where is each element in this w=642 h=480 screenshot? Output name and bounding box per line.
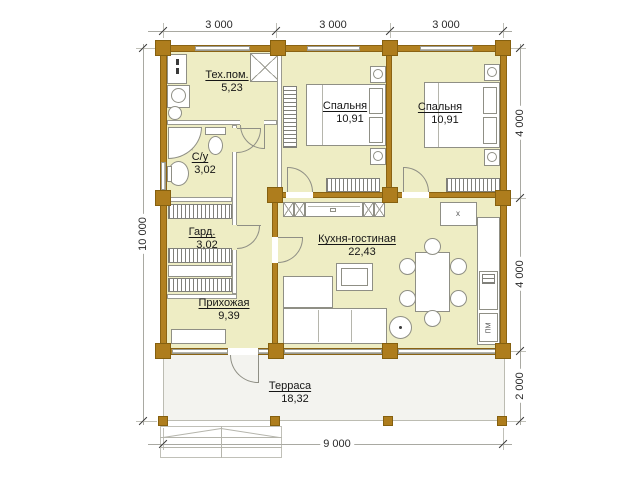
sofa-chaise: [283, 276, 333, 308]
chair-top: [424, 238, 441, 255]
label-hallway: Прихожая 9,39: [199, 297, 250, 322]
toilet-tank: [205, 127, 226, 135]
floor-lamp-dot: [399, 326, 402, 329]
coffee-table-inner: [341, 268, 368, 286]
post-inner-bedroom: [382, 187, 398, 203]
sofa-main: [283, 308, 387, 344]
label-wardrobe: Гард. 3,02: [186, 226, 217, 251]
panel-switch-1: [176, 59, 179, 65]
partition-bath-wardrobe: [167, 197, 232, 202]
bedroom1-closet: [283, 86, 297, 148]
chair-left-1: [399, 258, 416, 275]
post-bottom-3: [382, 343, 398, 359]
bedroom1-lamp-2: [373, 151, 383, 161]
window-tech: [195, 46, 250, 51]
kitchen-cabinet-2: [294, 202, 305, 217]
label-bedroom2: Спальня 10,91: [418, 101, 462, 126]
window-bath: [161, 162, 166, 190]
post-terrace-3: [383, 416, 393, 426]
room-name-hallway: Прихожая: [199, 297, 250, 310]
chair-left-2: [399, 290, 416, 307]
room-name-bathroom: С/у: [184, 151, 215, 164]
opening-bedroom1: [286, 192, 313, 198]
bedroom2-pillow-2: [483, 117, 497, 144]
chair-right-2: [450, 290, 467, 307]
room-name-terrace: Терраса: [269, 380, 311, 393]
room-area-wardrobe: 3,02: [196, 239, 217, 252]
sofa-divider-2: [351, 310, 352, 342]
dim-left: 10 000: [137, 214, 149, 254]
room-area-terrace: 18,32: [279, 393, 311, 406]
post-top-3: [382, 40, 398, 56]
post-right-mid: [495, 190, 511, 206]
clothes-rack-3: [168, 278, 232, 292]
dim-right-1: 4 000: [514, 106, 526, 140]
room-name-bedroom1: Спальня: [323, 100, 367, 113]
dim-top-1: 3 000: [202, 19, 236, 31]
post-top-2: [270, 40, 286, 56]
post-terrace-1: [158, 416, 168, 426]
room-name-bedroom2: Спальня: [418, 101, 462, 114]
wall-bedroom-divider: [386, 52, 392, 192]
bedroom2-lamp-2: [487, 152, 497, 162]
post-left-bottom: [155, 343, 171, 359]
post-inner-hall: [267, 187, 283, 203]
bedroom2-wardrobe: [446, 178, 500, 192]
terrace-fill: [163, 352, 505, 421]
bedroom1-pillow-2: [369, 117, 383, 143]
bedroom2-pillow-1: [483, 87, 497, 114]
room-name-kitchen: Кухня-гостиная: [318, 233, 396, 246]
post-top-1: [155, 40, 171, 56]
panel-switch-2: [176, 68, 179, 74]
dining-table: [415, 252, 450, 312]
window-bedroom1: [307, 46, 360, 51]
dim-top-2: 3 000: [316, 19, 350, 31]
bedroom1-pillow-1: [369, 88, 383, 114]
label-bedroom1: Спальня 10,91: [323, 100, 367, 125]
dim-top-3: 3 000: [429, 19, 463, 31]
worktop-faucet: [330, 208, 336, 212]
kitchen-cabinet-1: [283, 202, 294, 217]
dim-bottom: 9 000: [320, 438, 354, 450]
fridge-vent-lines: [482, 274, 495, 284]
room-name-wardrobe: Гард.: [186, 226, 217, 239]
room-area-bathroom: 3,02: [194, 164, 215, 177]
bedroom1-lamp-1: [373, 69, 383, 79]
worktop-back-line: [308, 206, 360, 207]
clothes-rack-1: [168, 204, 232, 219]
opening-entrance: [228, 348, 258, 355]
post-terrace-2: [270, 416, 280, 426]
sink-base: [167, 166, 172, 182]
room-area-kitchen: 22,43: [328, 246, 396, 259]
opening-bedroom2: [402, 192, 429, 198]
room-area-bedroom2: 10,91: [428, 114, 462, 127]
post-terrace-4: [497, 416, 507, 426]
dim-line-right: [520, 44, 521, 425]
floor-plan: x ПМ 3 000 3 000 3 000 10 000: [0, 0, 642, 480]
post-left-mid: [155, 190, 171, 206]
label-tech: Тех.пом. 5,23: [205, 69, 248, 94]
window-living-terrace-2: [398, 349, 496, 354]
step-center-line: [221, 426, 222, 458]
dim-ext-left-1: [136, 48, 157, 49]
bedroom2-lamp-1: [487, 67, 497, 77]
wall-hall-kitchen: [272, 198, 278, 348]
label-kitchen: Кухня-гостиная 22,43: [318, 233, 396, 258]
dim-right-3: 2 000: [514, 369, 526, 403]
dim-ext-left-2: [136, 421, 157, 422]
sofa-divider-1: [318, 310, 319, 342]
kitchen-cabinet-3: [363, 202, 374, 217]
washer-drum-icon: [171, 88, 186, 103]
window-hall-terrace: [172, 349, 228, 354]
dishwasher-label: ПМ: [486, 323, 493, 334]
chair-right-1: [450, 258, 467, 275]
vent-shaft-icon: [250, 53, 280, 82]
window-living-terrace-1: [284, 349, 382, 354]
dim-line-top: [148, 31, 512, 32]
boiler-icon: [168, 106, 182, 120]
chair-bottom: [424, 310, 441, 327]
window-bedroom2: [420, 46, 473, 51]
room-name-tech: Тех.пом.: [205, 69, 248, 82]
hall-bench: [171, 329, 226, 344]
dim-ext-bottom-2: [503, 428, 504, 450]
room-area-bedroom1: 10,91: [333, 113, 367, 126]
door-leaf-entrance: [258, 355, 259, 383]
label-bathroom: С/у 3,02: [184, 151, 215, 176]
wardrobe-shelf: [168, 265, 232, 277]
bedroom1-wardrobe: [326, 178, 380, 192]
dim-right-2: 4 000: [514, 257, 526, 291]
kitchen-cabinet-4: [374, 202, 385, 217]
post-right-bottom: [495, 343, 511, 359]
room-area-hallway: 9,39: [209, 310, 250, 323]
stove-mark: x: [456, 210, 460, 218]
post-top-4: [495, 40, 511, 56]
partition-tech-bedroom: [277, 52, 282, 192]
label-terrace: Терраса 18,32: [269, 380, 311, 405]
room-area-tech: 5,23: [215, 82, 248, 95]
post-bottom-2: [268, 343, 284, 359]
door-leaf-tech: [264, 125, 265, 149]
